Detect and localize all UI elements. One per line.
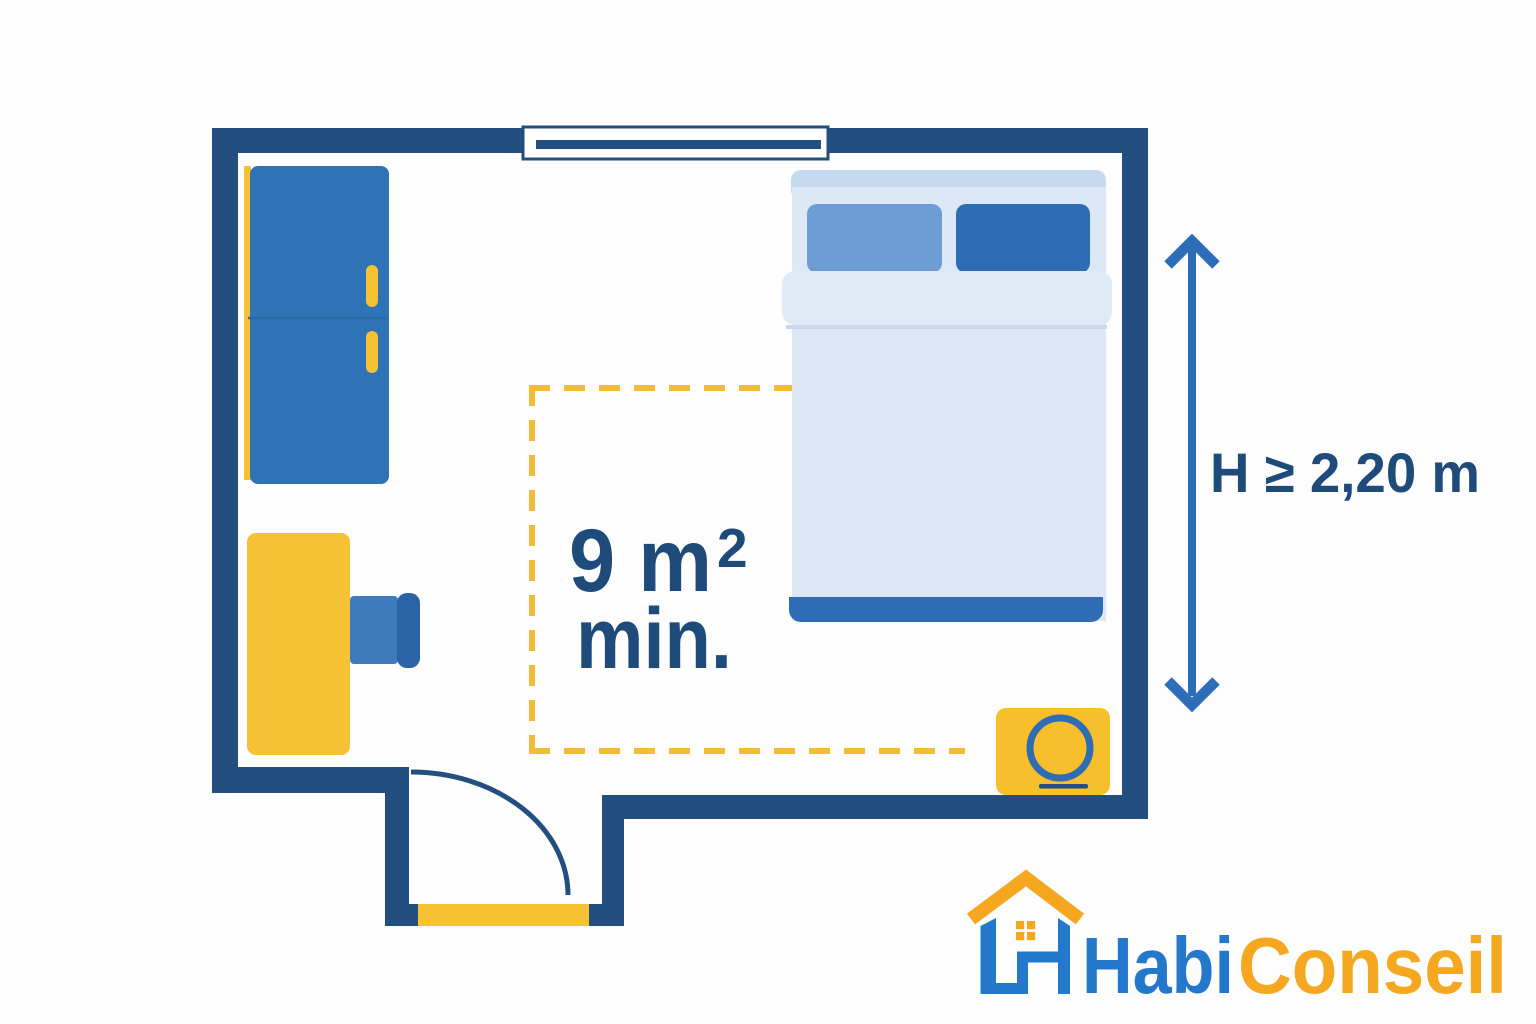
svg-text:2: 2 — [717, 517, 748, 579]
svg-text:Habi: Habi — [1082, 921, 1234, 1010]
svg-text:min.: min. — [576, 591, 732, 687]
svg-text:H ≥ 2,20 m: H ≥ 2,20 m — [1210, 441, 1480, 504]
svg-text:Conseil: Conseil — [1238, 921, 1507, 1010]
